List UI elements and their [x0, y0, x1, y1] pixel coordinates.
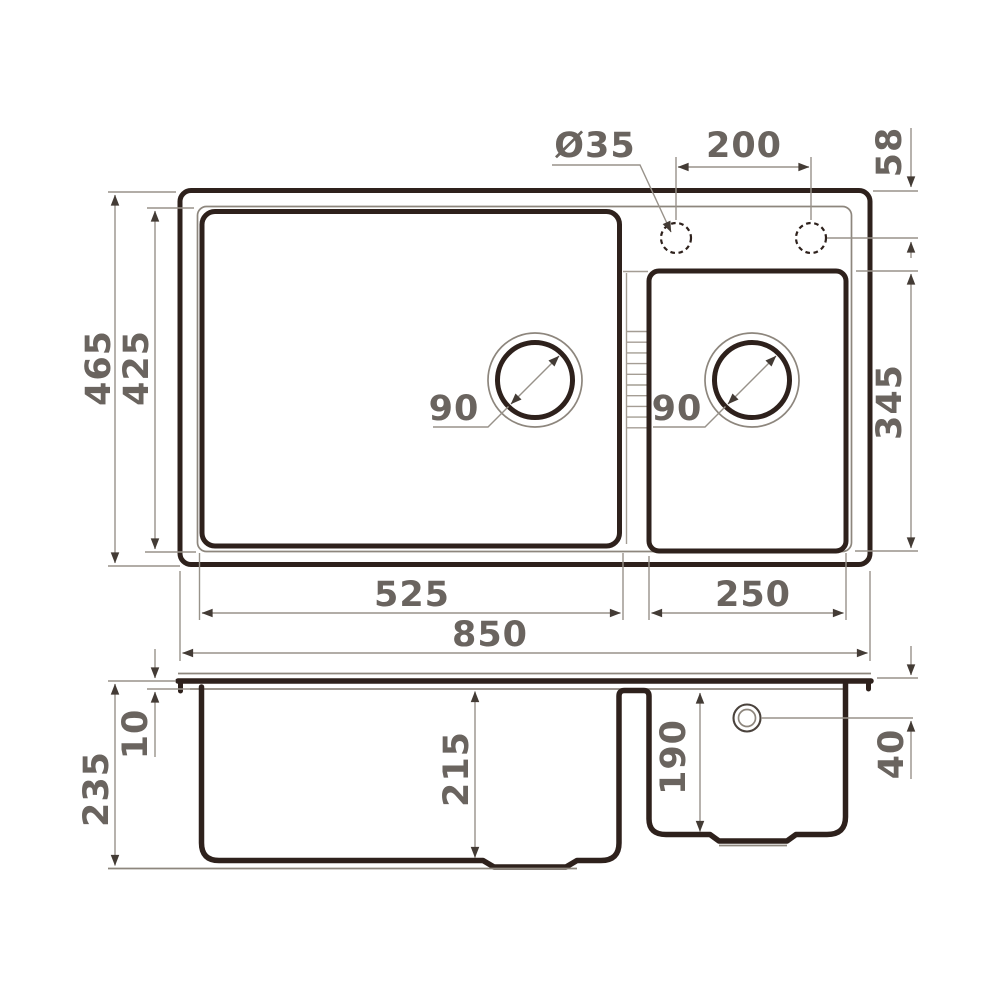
main-bowl-width-label: 525: [374, 575, 450, 615]
dim-overflow-offset: 40: [872, 646, 918, 779]
overall-height-label: 235: [77, 751, 117, 827]
inner-rim-depth-label: 425: [117, 330, 157, 406]
second-bowl-depth-label: 345: [870, 364, 910, 440]
faucet-hole-right: [796, 223, 826, 253]
faucet-diameter-label: Ø35: [554, 126, 635, 166]
side-view: 235 10 215 190 40: [77, 646, 918, 869]
bowls-section-profile: [202, 684, 846, 867]
main-bowl-outline: [202, 212, 620, 547]
sink-technical-drawing: Ø35 200 58 345 465: [0, 0, 1000, 1000]
bowl-divider-channel: [623, 272, 648, 545]
faucet-spacing-label: 200: [706, 126, 782, 166]
second-bowl-width-label: 250: [715, 575, 791, 615]
dim-second-bowl-depth: 345: [855, 271, 918, 551]
faucet-hole-left: [661, 223, 691, 253]
overall-width-label: 850: [452, 615, 528, 655]
second-bowl-inner-depth-label: 190: [654, 719, 694, 795]
drawing-canvas: Ø35 200 58 345 465: [0, 0, 1000, 1000]
overall-depth-label: 465: [79, 330, 119, 406]
dim-rim-thickness: 10: [116, 649, 194, 759]
main-drain-diameter-arrow: [511, 356, 559, 404]
main-drain-diameter-label: 90: [429, 389, 480, 429]
overflow-hole: [734, 705, 914, 732]
top-view: Ø35 200 58 345 465: [79, 126, 918, 661]
dim-second-bowl-inner-depth: 190: [654, 693, 700, 832]
second-drain-diameter-arrow: [728, 356, 776, 404]
dim-inner-rim-depth: 425: [117, 208, 196, 552]
second-drain-diameter-label: 90: [652, 389, 703, 429]
rim-thickness-label: 10: [116, 709, 156, 760]
dim-main-bowl-inner-depth: 215: [437, 692, 477, 858]
main-bowl-inner-depth-label: 215: [437, 731, 477, 807]
divider-hatch-lines: [627, 332, 647, 428]
faucet-diameter-leader: [552, 165, 671, 232]
sink-outer-edge: [180, 191, 870, 565]
faucet-offset-label: 58: [870, 127, 910, 178]
overflow-offset-label: 40: [872, 729, 912, 780]
